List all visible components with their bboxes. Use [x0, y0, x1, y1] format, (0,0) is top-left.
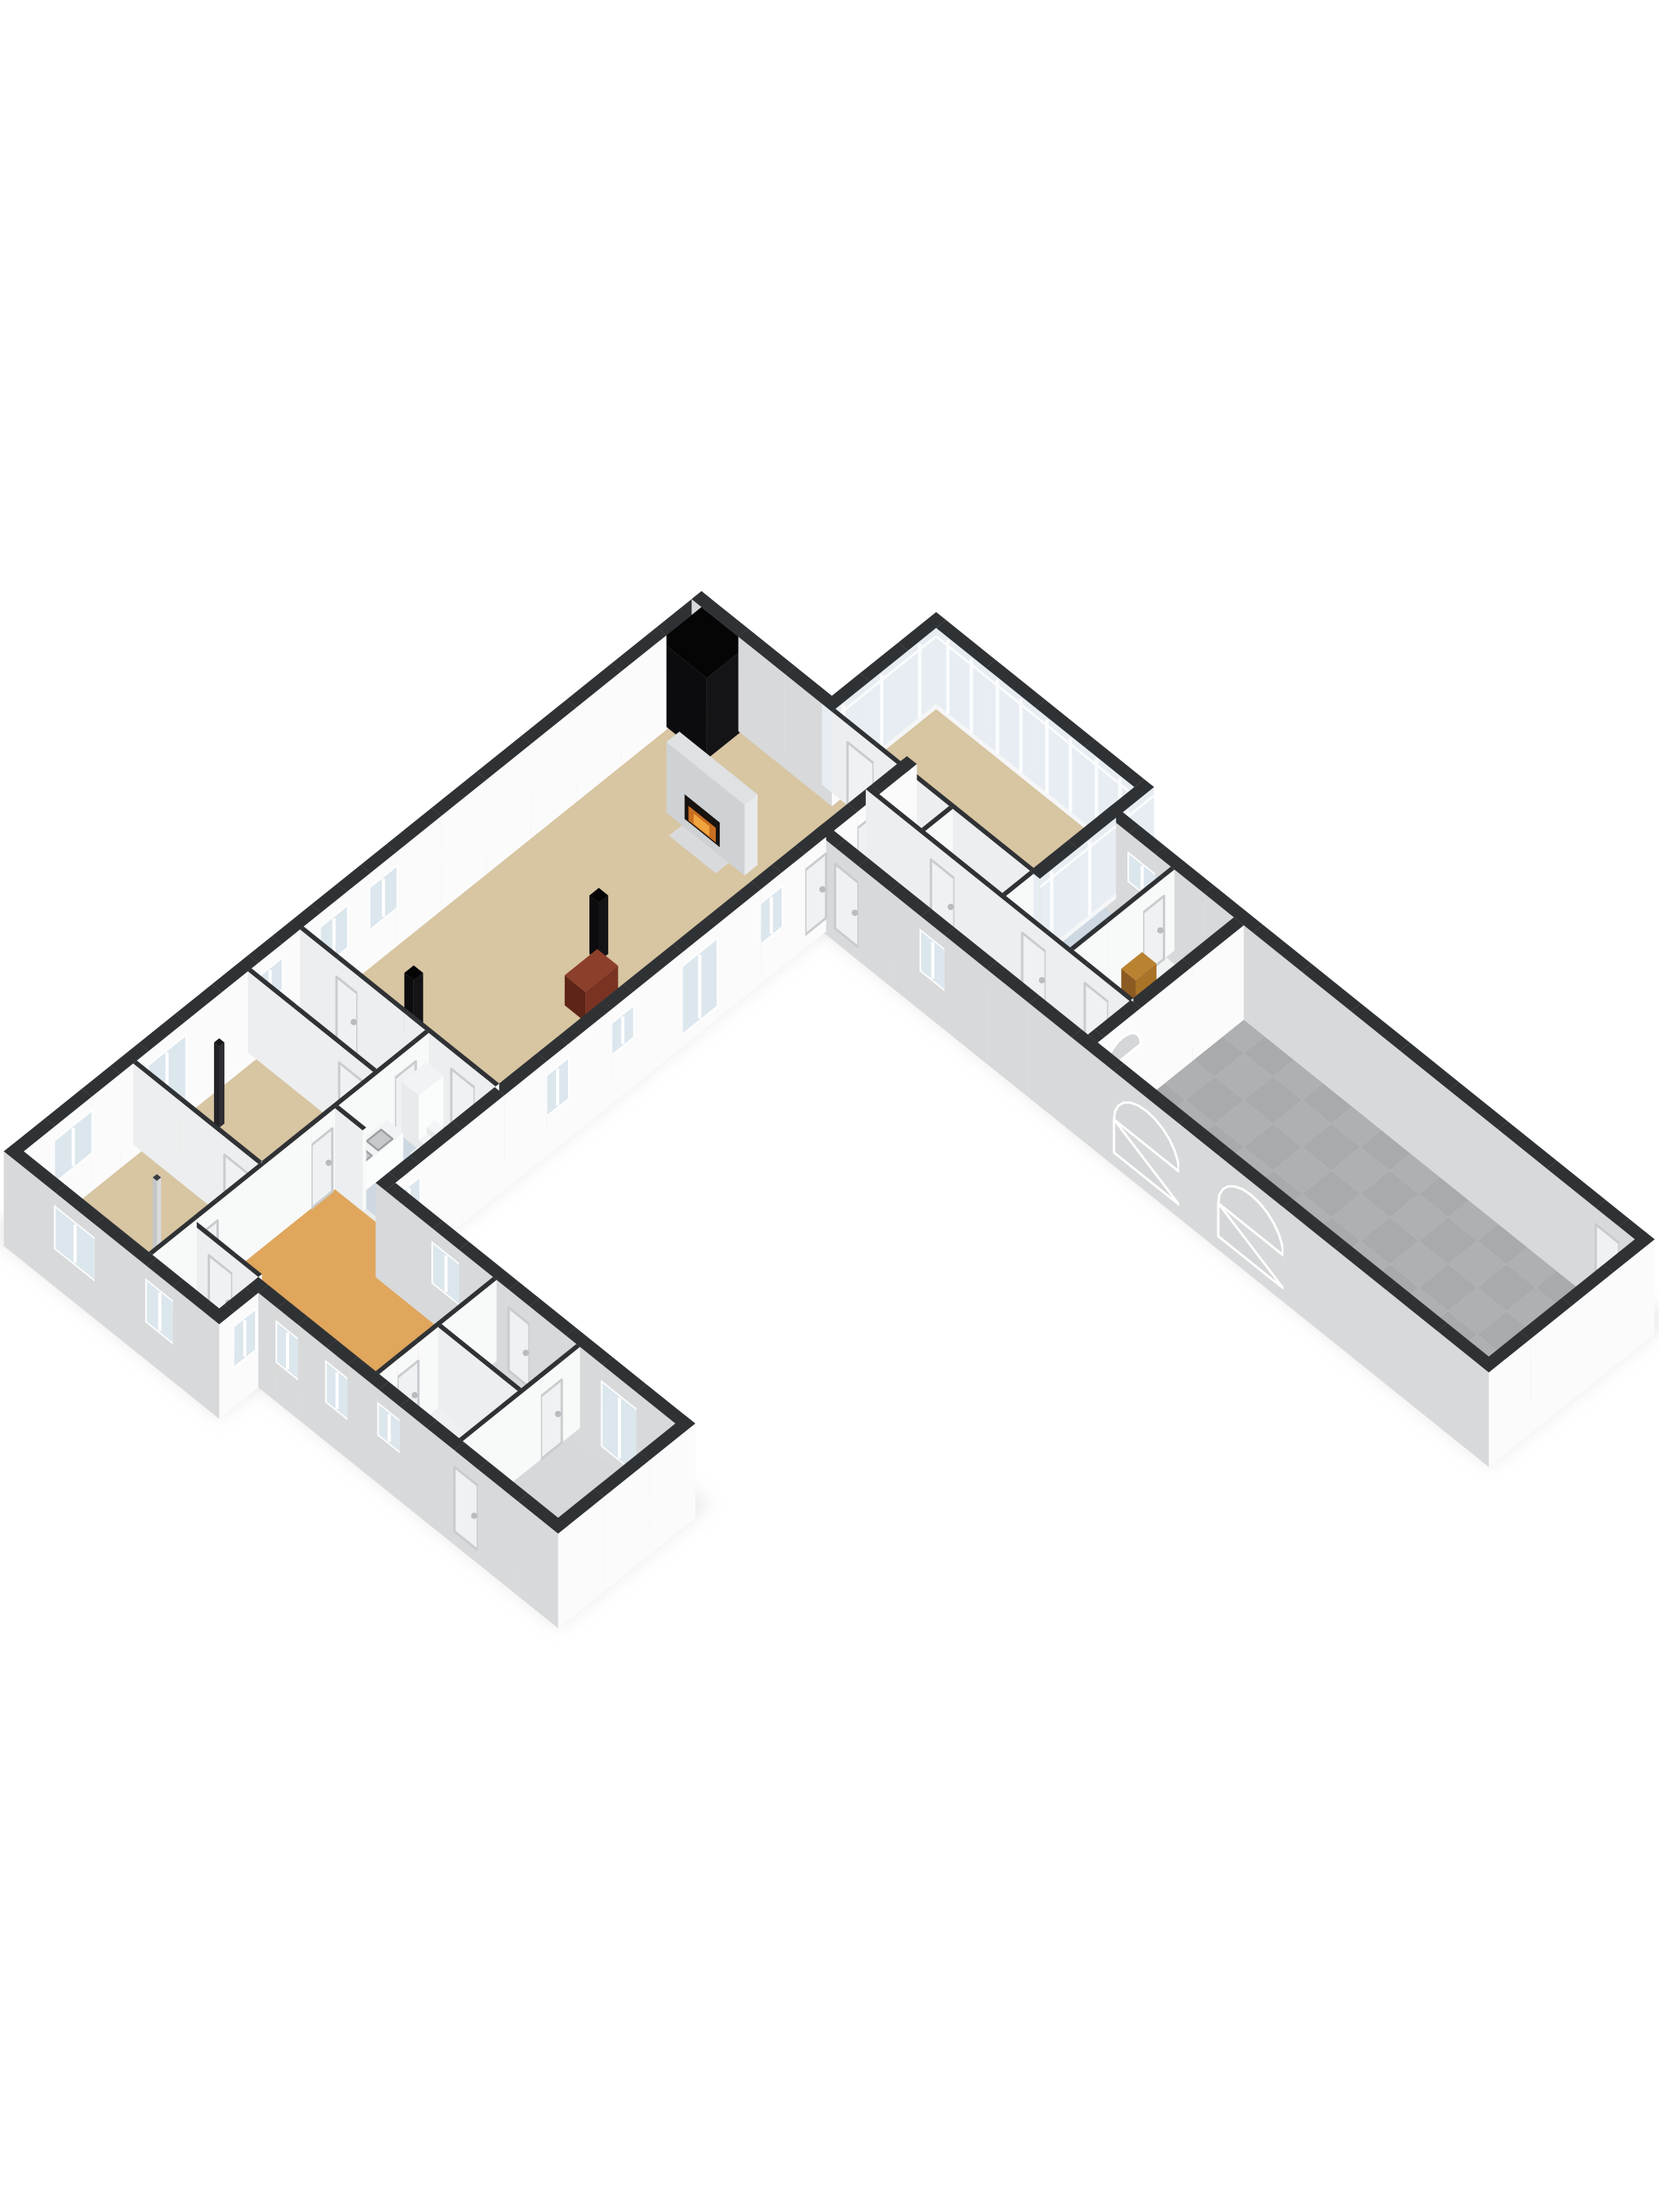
- bottomwing-partition-2: [537, 1359, 562, 1460]
- page: [0, 0, 1659, 2212]
- bedroom-corridor-wall: [308, 1108, 333, 1209]
- front-wall-west: [209, 1304, 235, 1419]
- floor-plan-svg: [0, 0, 1659, 2212]
- stove-pipe: [214, 1038, 224, 1127]
